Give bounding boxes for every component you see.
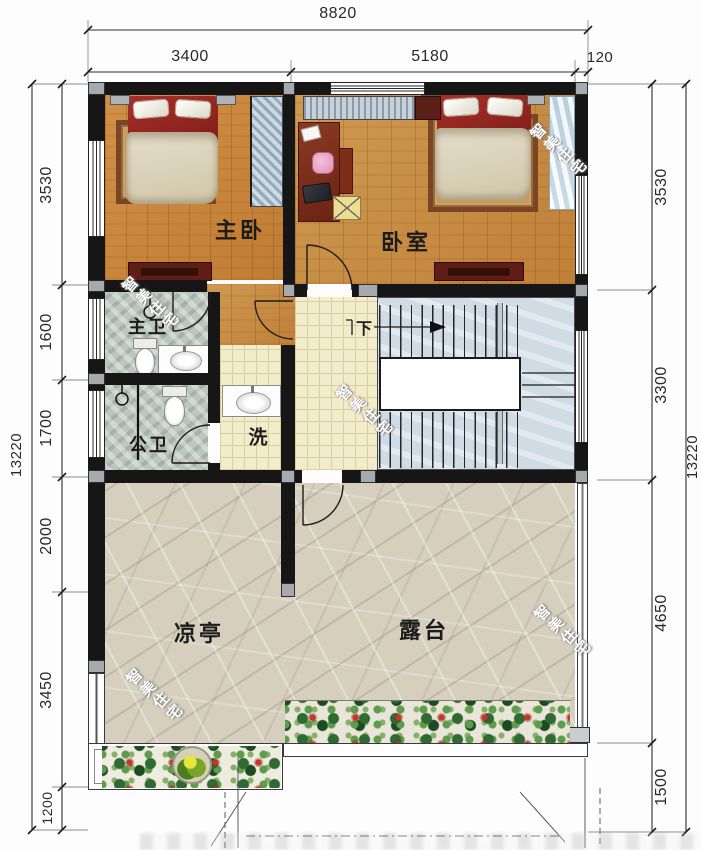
extension-lines [32, 20, 686, 832]
dim-left-total: 13220 [7, 425, 25, 485]
stair-arrow-head [430, 321, 446, 333]
label-terrace: 露台 [399, 613, 449, 645]
dim-right-seg-3530: 3530 [653, 157, 671, 217]
label-bedroom: 卧室 [381, 225, 431, 257]
dim-left-seg-1600: 1600 [38, 302, 56, 362]
dim-left-seg-1200: 1200 [38, 778, 56, 838]
dim-right-total: 13220 [683, 427, 701, 487]
bottom-artifact-strip [140, 833, 700, 850]
dimension-ticks [28, 26, 690, 836]
dim-top-seg-5180: 5180 [390, 48, 470, 66]
door-arcs [172, 245, 352, 525]
label-master-bedroom: 主卧 [215, 213, 265, 245]
label-stairs-down: 下 [356, 315, 372, 339]
dim-left-seg-3450: 3450 [38, 660, 56, 720]
stair-detail [346, 320, 575, 397]
plan-linework [0, 0, 701, 850]
dim-left-seg-3530: 3530 [38, 155, 56, 215]
dim-top-total: 8820 [298, 5, 378, 23]
dim-right-seg-4650: 4650 [653, 583, 671, 643]
dim-right-seg-1500: 1500 [653, 757, 671, 817]
dim-right-seg-3300: 3300 [653, 355, 671, 415]
dim-top-seg-120: 120 [582, 48, 618, 66]
dim-left-seg-2000: 2000 [38, 506, 56, 566]
vestibule-door [255, 301, 293, 339]
bedroom-door [307, 245, 352, 290]
dim-top-seg-3400: 3400 [150, 48, 230, 66]
label-pavilion: 凉亭 [174, 616, 224, 648]
floor-plan-canvas: 8820 3400 5180 120 13220 3530 1600 1700 … [0, 0, 701, 850]
public-bath-door [172, 425, 210, 463]
terrace-door [303, 485, 343, 525]
label-wash: 洗 [248, 423, 267, 450]
label-public-bath: 公卫 [129, 431, 169, 457]
dim-left-seg-1700: 1700 [38, 398, 56, 458]
